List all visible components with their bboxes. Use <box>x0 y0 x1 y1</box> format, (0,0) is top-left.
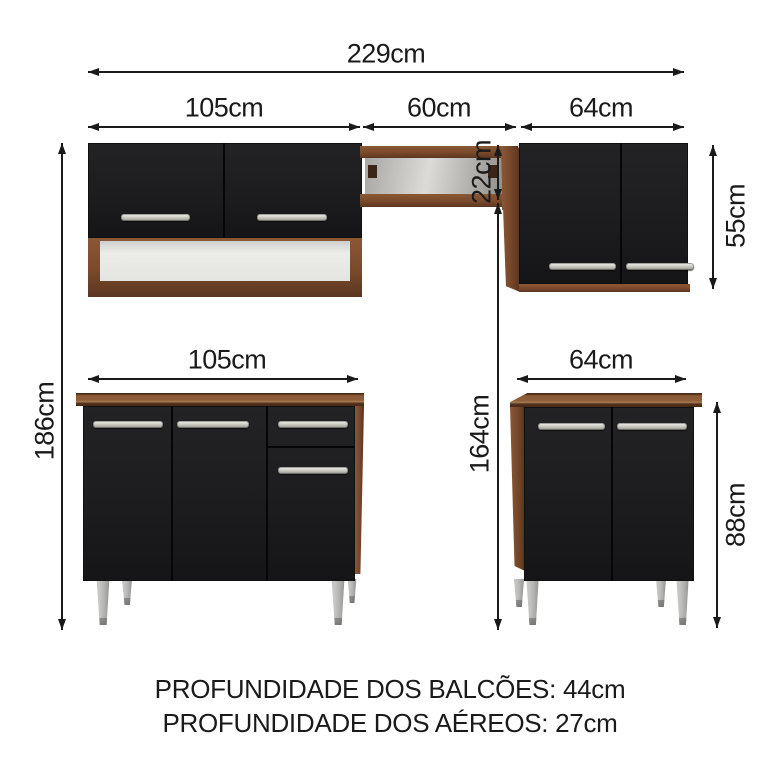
door-handle <box>121 214 190 221</box>
cabinet-leg <box>674 579 691 625</box>
cabinet-side-panel <box>501 147 520 292</box>
dim-label-total-width: 229cm <box>347 41 426 68</box>
door-gap <box>611 407 613 581</box>
cabinet-leg <box>120 579 134 605</box>
dim-label-upper-middle-height: 22cm <box>469 140 496 204</box>
door-gap <box>171 406 173 581</box>
kitchen-cabinet-dimension-diagram: 229cm 105cm 60cm 64cm 105cm 64cm 186cm 2… <box>0 0 780 780</box>
dim-label-lower-left-width: 105cm <box>188 347 267 374</box>
dim-arrow-upper-middle-height <box>497 145 499 200</box>
door-handle <box>257 214 327 221</box>
dim-label-upper-middle-width: 60cm <box>407 95 471 122</box>
cabinet-leg <box>329 579 347 625</box>
door-gap <box>223 143 225 238</box>
drawer-handle <box>278 421 348 428</box>
depth-note-balcoes: PROFUNDIDADE DOS BALCÕES: 44cm <box>0 672 780 706</box>
door-handle <box>626 263 694 270</box>
dim-label-lower-span-height: 164cm <box>467 395 494 474</box>
upper-left-doors-panel <box>88 143 362 238</box>
dim-arrow-upper-right-width <box>521 126 684 128</box>
dim-arrow-lower-span-height <box>497 203 499 630</box>
open-niche-interior <box>100 241 350 281</box>
upper-right-wall-cabinet <box>501 143 690 292</box>
cabinet-leg <box>512 579 526 607</box>
dim-arrow-total-height <box>61 143 63 630</box>
door-gap <box>266 406 268 581</box>
cabinet-leg <box>654 579 668 607</box>
depth-note-aereos: PROFUNDIDADE DOS AÉREOS: 27cm <box>0 706 780 740</box>
dim-arrow-lower-right-width <box>517 378 686 380</box>
dim-label-lower-right-width: 64cm <box>569 347 633 374</box>
dim-arrow-upper-left-width <box>88 126 360 128</box>
dim-label-lower-right-height: 88cm <box>723 483 750 547</box>
dim-arrow-lower-right-height <box>716 402 718 628</box>
door-handle <box>93 421 163 428</box>
door-handle <box>538 423 605 430</box>
lower-right-front-panel <box>524 407 694 581</box>
dim-label-upper-right-width: 64cm <box>569 95 633 122</box>
cabinet-side-panel <box>510 406 525 571</box>
lower-left-base-cabinet <box>76 393 366 632</box>
cabinet-leg <box>524 579 541 625</box>
dim-arrow-lower-left-width <box>88 378 358 380</box>
door-gap <box>620 143 622 284</box>
dim-arrow-upper-middle-width <box>363 126 516 128</box>
countertop <box>510 393 702 407</box>
door-handle <box>278 467 348 474</box>
door-handle <box>549 263 616 270</box>
cabinet-leg <box>346 579 358 603</box>
drawer-gap <box>266 446 355 448</box>
upper-right-doors-panel <box>519 143 688 284</box>
upper-left-wall-cabinet <box>88 143 362 297</box>
dim-arrow-upper-right-height <box>712 145 714 289</box>
depth-notes: PROFUNDIDADE DOS BALCÕES: 44cm PROFUNDID… <box>0 672 780 740</box>
dim-label-total-height: 186cm <box>32 382 59 461</box>
shelf-bracket <box>368 165 377 178</box>
lower-right-base-cabinet <box>510 393 702 632</box>
dim-label-upper-left-width: 105cm <box>185 95 264 122</box>
door-handle <box>177 421 249 428</box>
cabinet-side-panel <box>355 406 364 574</box>
countertop <box>76 393 364 406</box>
cabinet-leg <box>94 579 112 625</box>
lower-left-front-panel <box>83 406 355 581</box>
cabinet-bottom-strip <box>519 284 690 292</box>
dim-label-upper-right-height: 55cm <box>723 184 750 248</box>
dim-arrow-total-width <box>88 71 684 73</box>
open-niche-frame <box>88 238 362 297</box>
door-handle <box>617 423 687 430</box>
